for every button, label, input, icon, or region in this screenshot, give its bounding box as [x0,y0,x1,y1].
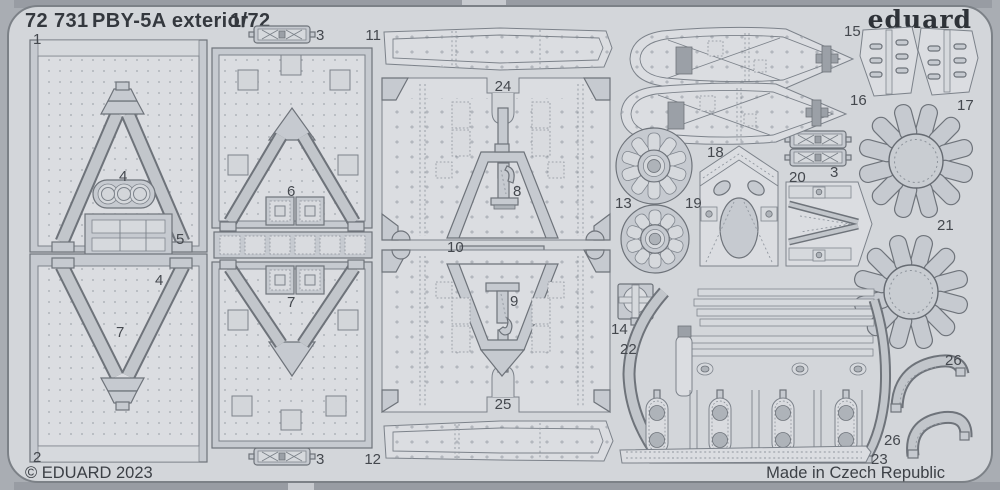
part-label-14: 14 [611,321,628,338]
part-11-wing-strip [384,28,612,70]
fret-frame-bottom-edge [14,482,1000,490]
part-label-24: 24 [495,78,512,95]
part-label-9: 9 [510,293,518,310]
part-3-fitting [785,149,851,166]
product-title: PBY-5A exterior [92,10,248,32]
part-19-wheel-hub [621,205,689,273]
part-label-8: 8 [513,183,521,200]
fret-canvas: 72 731 PBY-5A exterior 1/72 eduard © EDU… [0,0,1000,490]
part-label-25: 25 [495,396,512,413]
part-20-fairing-panel [786,182,872,266]
part-label-4: 4 [119,168,127,185]
part-label-17: 17 [957,97,974,114]
part-label-22: 22 [620,341,637,358]
part-label-16: 16 [850,92,867,109]
part-18-bulkhead [700,146,778,266]
part-label-15: 15 [844,23,861,40]
part-label-3: 3 [316,451,324,468]
part-label-10: 10 [447,239,464,256]
frame-bottom-gap [288,482,314,490]
part-label-3: 3 [316,27,324,44]
part-6-panel [212,48,372,231]
part-label-7: 7 [116,324,124,341]
part-7-panel [212,260,372,448]
made-in-text: Made in Czech Republic [766,464,945,482]
part-label-4: 4 [155,272,163,289]
part-label-21: 21 [937,217,954,234]
product-code: 72 731 [25,10,89,32]
copyright-text: © EDUARD 2023 [25,464,153,482]
part-label-18: 18 [707,144,724,161]
part-label-23: 23 [871,451,888,468]
part-label-11: 11 [365,27,381,44]
part-3-fitting [249,26,315,43]
part-label-26: 26 [945,352,962,369]
part-label-26: 26 [884,432,901,449]
part-label-13: 13 [615,195,632,212]
part-label-5: 5 [176,231,184,248]
part-3-fitting [249,448,315,465]
walkway-strip [214,232,372,258]
part-5-walkway [85,214,172,256]
photoetch-sheet-photo: 72 731 PBY-5A exterior 1/72 eduard © EDU… [0,0,1000,490]
part-label-3: 3 [830,164,838,181]
part-24-wing-panel [382,78,610,240]
part-label-7: 7 [287,294,295,311]
part-label-6: 6 [287,183,295,200]
part-label-2: 2 [33,449,41,466]
part-label-12: 12 [364,451,381,468]
part-label-1: 1 [33,31,41,48]
part-13-wheel-hub [616,128,692,204]
part-2-panel [30,254,207,462]
part-label-19: 19 [685,195,702,212]
part-12-wing-strip [384,421,613,461]
part-25-wing-panel [382,250,610,412]
part-label-20: 20 [789,169,806,186]
